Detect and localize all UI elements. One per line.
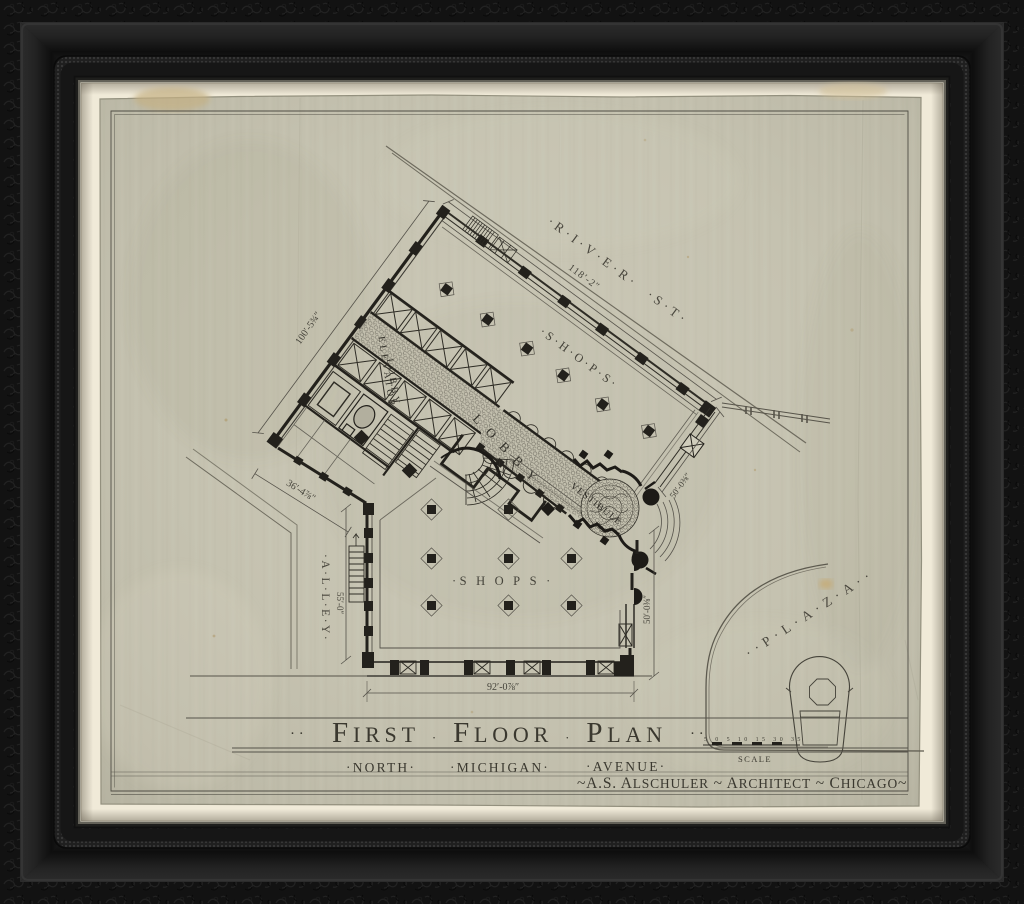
svg-text:·S H O P S ·: ·S H O P S · [452,574,554,588]
svg-text:· ·: · · [290,726,304,742]
svg-text:~A.S. ALSCHULER ~ ARCHITECT ~: ~A.S. ALSCHULER ~ ARCHITECT ~ CHICAGO~ [577,775,907,792]
svg-text:FIRST · FLOOR · PLAN: FIRST · FLOOR · PLAN [332,717,667,749]
svg-text:·MICHIGAN·: ·MICHIGAN· [450,760,550,775]
svg-text:92′-0⅞″: 92′-0⅞″ [487,682,519,693]
svg-text:·NORTH·: ·NORTH· [346,760,416,775]
svg-text:·A·L·L·E·Y·: ·A·L·L·E·Y· [319,554,331,642]
svg-text:5 0 5 10 15 30 35: 5 0 5 10 15 30 35 [704,737,804,743]
svg-text:55′-0″: 55′-0″ [335,592,345,614]
svg-text:· ·: · · [690,726,704,742]
svg-text:50′-0⅜″: 50′-0⅜″ [642,595,652,624]
svg-text:SCALE: SCALE [738,754,772,764]
